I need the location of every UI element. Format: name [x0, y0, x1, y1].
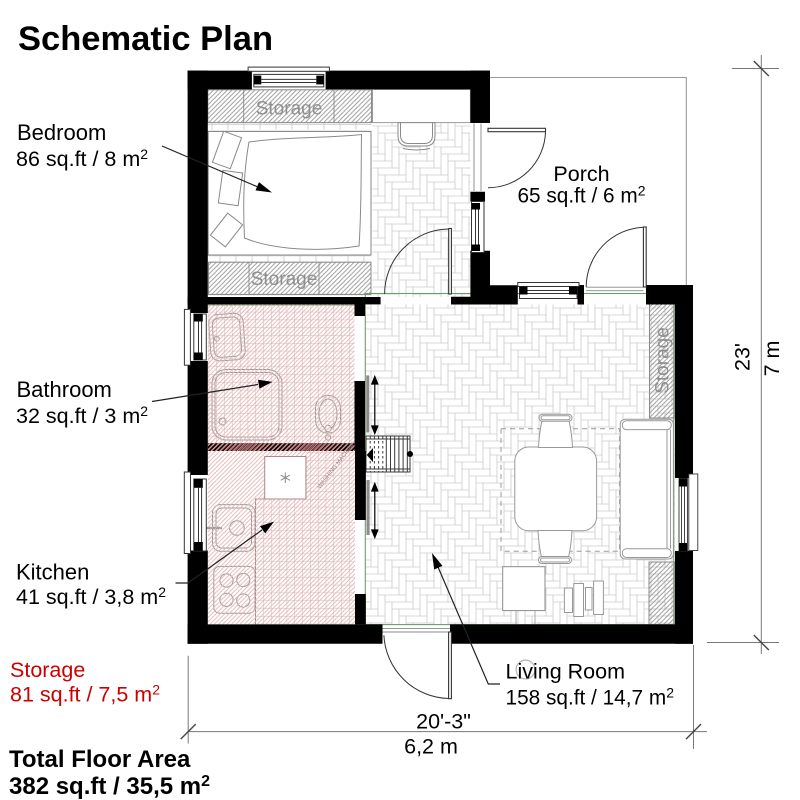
- svg-text:81 sq.ft / 7,5 m2: 81 sq.ft / 7,5 m2: [10, 682, 160, 707]
- svg-text:20'-3": 20'-3": [416, 710, 471, 734]
- svg-text:Kitchen: Kitchen: [16, 560, 89, 585]
- svg-text:Living Room: Living Room: [506, 660, 626, 684]
- svg-text:Bedroom: Bedroom: [17, 120, 106, 145]
- svg-text:6,2 m: 6,2 m: [404, 735, 458, 759]
- svg-text:Total Floor Area: Total Floor Area: [9, 746, 191, 773]
- svg-text:41 sq.ft / 3,8 m2: 41 sq.ft / 3,8 m2: [16, 584, 166, 609]
- svg-text:158 sq.ft / 14,7 m2: 158 sq.ft / 14,7 m2: [506, 685, 675, 710]
- svg-text:Storage: Storage: [256, 99, 323, 120]
- svg-text:86 sq.ft / 8 m2: 86 sq.ft / 8 m2: [16, 146, 148, 171]
- svg-text:23': 23': [731, 343, 755, 371]
- svg-text:32 sq.ft / 3 m2: 32 sq.ft / 3 m2: [16, 403, 148, 428]
- svg-text:Schematic Plan: Schematic Plan: [18, 20, 273, 58]
- svg-text:Storage: Storage: [251, 269, 318, 290]
- svg-text:Storage: Storage: [653, 327, 674, 394]
- svg-text:65 sq.ft / 6 m2: 65 sq.ft / 6 m2: [517, 183, 645, 208]
- svg-text:Porch: Porch: [553, 162, 609, 186]
- svg-text:Storage: Storage: [10, 658, 85, 682]
- svg-text:7 m: 7 m: [760, 341, 784, 377]
- svg-text:382 sq.ft / 35,5 m2: 382 sq.ft / 35,5 m2: [9, 773, 210, 800]
- svg-text:Bathroom: Bathroom: [17, 377, 112, 402]
